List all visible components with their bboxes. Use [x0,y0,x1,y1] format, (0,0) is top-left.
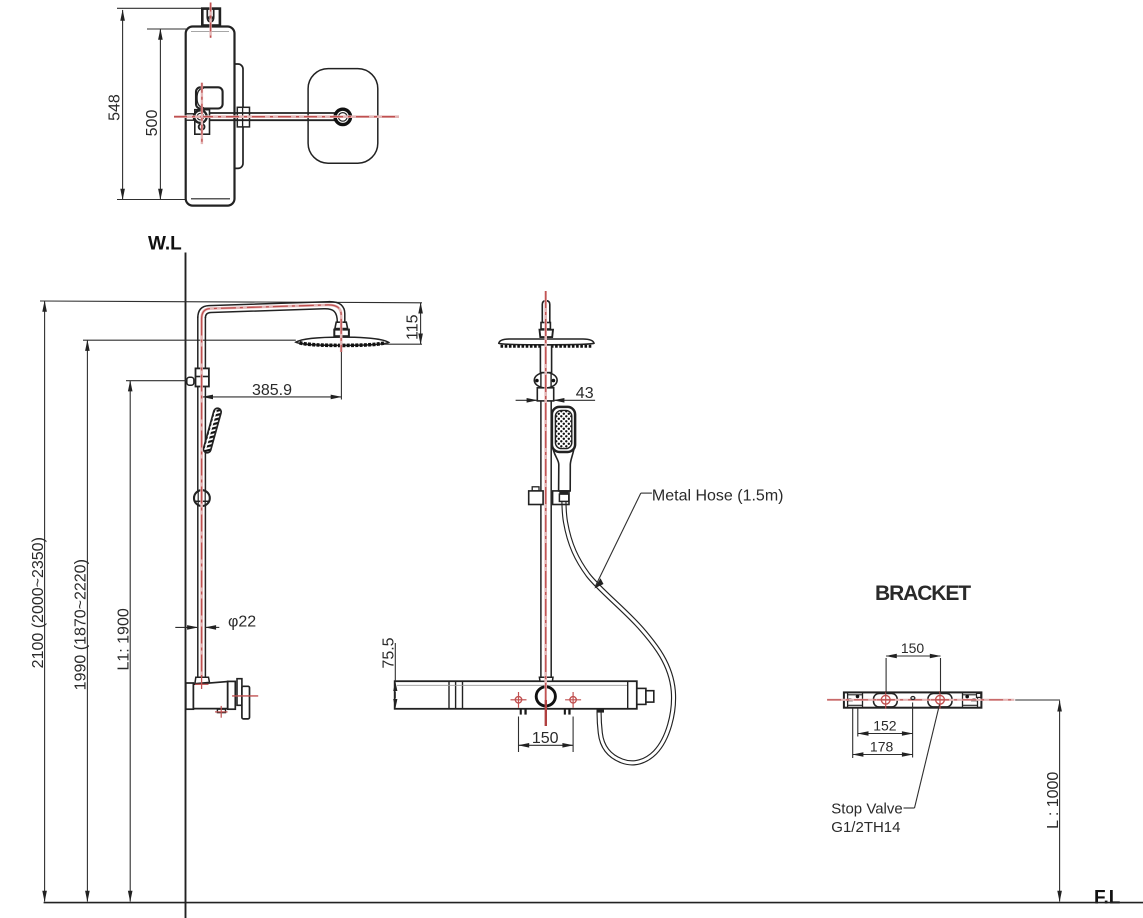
svg-text:F.L: F.L [1094,888,1121,909]
svg-text:548: 548 [106,94,123,121]
svg-text:115: 115 [405,314,422,340]
svg-text:Metal Hose (1.5m): Metal Hose (1.5m) [652,487,784,504]
svg-text:L1: 1900: L1: 1900 [116,608,133,670]
svg-text:178: 178 [870,738,894,754]
svg-text:152: 152 [873,718,897,734]
svg-text:BRACKET: BRACKET [875,582,971,605]
svg-text:L : 1000: L : 1000 [1045,772,1062,829]
svg-text:2100 (2000~2350): 2100 (2000~2350) [30,537,47,668]
svg-text:Stop Valve: Stop Valve [831,800,902,817]
svg-text:43: 43 [576,385,594,402]
svg-text:150: 150 [532,730,559,747]
svg-text:W.L: W.L [148,234,182,255]
svg-text:150: 150 [901,640,925,656]
svg-text:G1/2TH14: G1/2TH14 [831,819,900,836]
svg-text:1990 (1870~2220): 1990 (1870~2220) [73,559,90,690]
svg-text:500: 500 [144,110,161,137]
svg-text:75.5: 75.5 [381,637,398,668]
svg-text:385.9: 385.9 [252,382,292,399]
svg-text:φ22: φ22 [228,613,256,630]
